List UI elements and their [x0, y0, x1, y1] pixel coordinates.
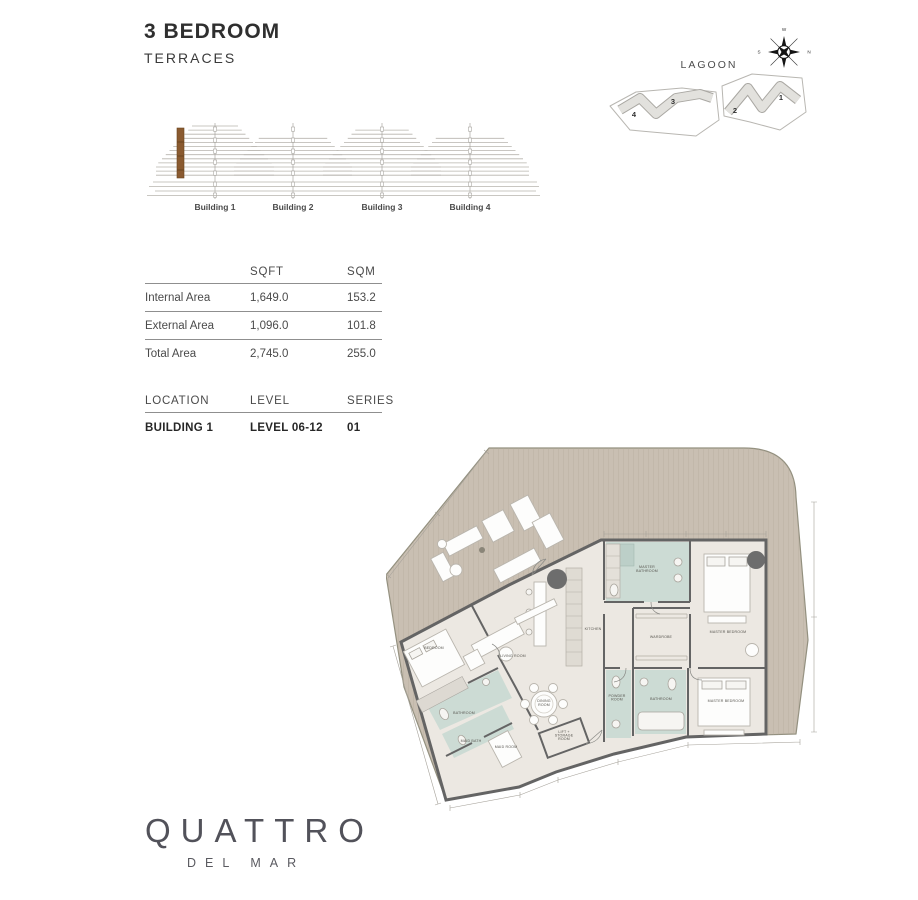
- col-series: SERIES: [347, 395, 382, 407]
- table-row: Total Area 2,745.0 255.0: [145, 340, 382, 367]
- location-table: LOCATION LEVEL SERIES BUILDING 1 LEVEL 0…: [145, 390, 382, 443]
- col-level: LEVEL: [250, 395, 347, 407]
- location-table-values: BUILDING 1 LEVEL 06-12 01: [145, 413, 382, 443]
- table-row: Internal Area 1,649.0 153.2: [145, 284, 382, 312]
- row-label: Internal Area: [145, 292, 250, 304]
- room-label: BATHROOM: [650, 697, 672, 701]
- series-value: 01: [347, 422, 382, 434]
- elevation-label-2: Building 2: [272, 202, 313, 212]
- room-label: LIVING ROOM: [500, 654, 526, 658]
- sqft-value: 2,745.0: [250, 348, 347, 360]
- brochure-page: 3 BEDROOM TERRACES LAGOON W N E S: [0, 0, 918, 900]
- elevation-label-1: Building 1: [194, 202, 235, 212]
- room-label: KITCHEN: [585, 627, 602, 631]
- col-sqft: SQFT: [250, 266, 347, 278]
- building-number-2: 2: [733, 106, 737, 115]
- building-elevation: Building 1 Building 2 Building 3 Buildin…: [145, 120, 545, 215]
- location-value: BUILDING 1: [145, 422, 250, 434]
- brand-tagline: DEL MAR: [145, 856, 374, 870]
- row-label: Total Area: [145, 348, 250, 360]
- sqft-value: 1,649.0: [250, 292, 347, 304]
- building-number-1: 1: [779, 93, 783, 102]
- brand-logo: QUATTRO DEL MAR: [145, 812, 374, 870]
- compass-left: S: [757, 50, 760, 55]
- area-table: SQFT SQM Internal Area 1,649.0 153.2 Ext…: [145, 260, 382, 367]
- room-label: MAID BATH: [461, 739, 482, 743]
- col-sqm: SQM: [347, 266, 382, 278]
- room-label: MASTER BEDROOM: [710, 630, 747, 634]
- room-label: BEDROOM: [424, 646, 444, 650]
- compass-top: W: [782, 27, 787, 32]
- compass-icon: W N E S: [757, 25, 811, 83]
- page-title: 3 BEDROOM: [144, 20, 280, 44]
- room-label: BATHROOM: [453, 711, 475, 715]
- col-location: LOCATION: [145, 395, 250, 407]
- room-label: DININGROOM: [537, 699, 551, 707]
- row-label: External Area: [145, 320, 250, 332]
- compass-right: N: [807, 50, 810, 55]
- elevation-lines: [147, 123, 540, 199]
- room-label: MAID ROOM: [495, 745, 518, 749]
- area-table-header: SQFT SQM: [145, 260, 382, 284]
- room-label: MASTER BEDROOM: [708, 699, 745, 703]
- site-plan: LAGOON W N E S 4 3 2: [602, 14, 902, 146]
- floor-plan: KITCHENMASTERBATHROOMWARDROBEMASTER BEDR…: [386, 442, 820, 814]
- page-subtitle: TERRACES: [144, 50, 280, 66]
- brand-name: QUATTRO: [145, 812, 374, 850]
- column-circle: [547, 569, 567, 589]
- sqm-value: 101.8: [347, 320, 382, 332]
- elevation-label-3: Building 3: [361, 202, 402, 212]
- table-row: External Area 1,096.0 101.8: [145, 312, 382, 340]
- room-label: MASTERBATHROOM: [636, 565, 658, 573]
- elevation-label-4: Building 4: [449, 202, 490, 212]
- sqft-value: 1,096.0: [250, 320, 347, 332]
- level-value: LEVEL 06-12: [250, 422, 347, 434]
- page-header: 3 BEDROOM TERRACES: [144, 20, 280, 66]
- lagoon-label: LAGOON: [681, 59, 738, 71]
- sqm-value: 153.2: [347, 292, 382, 304]
- building-number-3: 3: [671, 97, 675, 106]
- sqm-value: 255.0: [347, 348, 382, 360]
- location-table-header: LOCATION LEVEL SERIES: [145, 390, 382, 413]
- room-label: WARDROBE: [650, 635, 673, 639]
